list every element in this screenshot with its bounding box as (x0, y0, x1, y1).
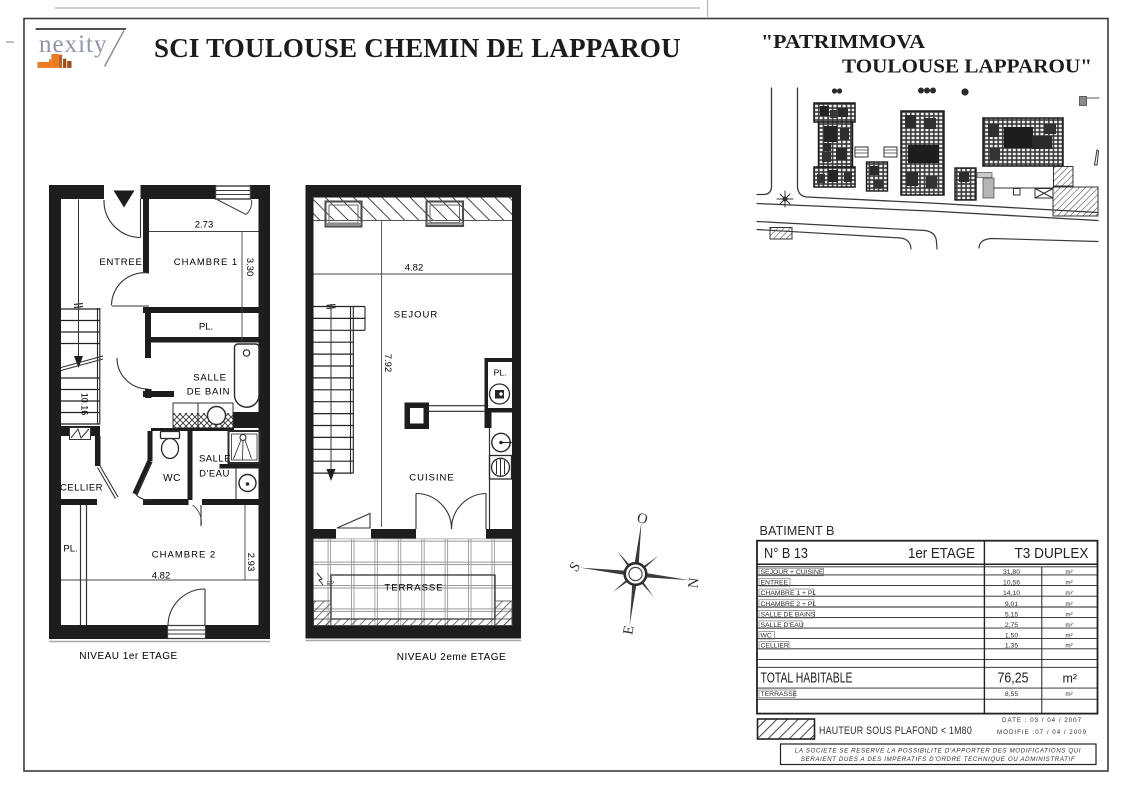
svg-text:HAUTEUR SOUS PLAFOND < 1M80: HAUTEUR SOUS PLAFOND < 1M80 (819, 725, 972, 737)
svg-text:CELLIER: CELLIER (60, 483, 103, 494)
svg-text:m²: m² (1065, 611, 1072, 618)
svg-text:PL.: PL. (63, 544, 77, 555)
svg-text:1,35: 1,35 (1005, 643, 1018, 650)
svg-text:2.93: 2.93 (245, 553, 256, 572)
svg-text:PL.: PL. (199, 322, 213, 333)
svg-text:SALLE: SALLE (193, 373, 227, 384)
svg-text:1,50: 1,50 (1005, 632, 1018, 639)
svg-text:WC: WC (761, 632, 772, 639)
svg-text:nexity: nexity (39, 31, 108, 58)
svg-text:14,10: 14,10 (1003, 590, 1020, 597)
svg-text:MODIFIE :07 / 04 / 2009: MODIFIE :07 / 04 / 2009 (997, 729, 1087, 736)
svg-text:m²: m² (1065, 691, 1072, 698)
svg-text:SALLE D'EAU: SALLE D'EAU (761, 622, 804, 629)
svg-text:SALLE DE BAINS: SALLE DE BAINS (761, 611, 816, 618)
svg-text:D'EAU: D'EAU (199, 469, 230, 480)
svg-text:SEJOUR + CUISINE: SEJOUR + CUISINE (761, 569, 824, 576)
svg-text:N° B 13: N° B 13 (764, 546, 808, 562)
svg-text:m²: m² (1065, 580, 1072, 587)
svg-text:m²: m² (1065, 590, 1072, 597)
svg-text:m²: m² (1065, 643, 1072, 650)
svg-text:SCI TOULOUSE CHEMIN DE LAPPARO: SCI TOULOUSE CHEMIN DE LAPPAROU (154, 33, 681, 63)
svg-text:CHAMBRE 1: CHAMBRE 1 (174, 257, 238, 268)
svg-text:CHAMBRE 1 + PL: CHAMBRE 1 + PL (761, 590, 817, 597)
svg-text:SALLE: SALLE (199, 454, 231, 465)
svg-text:10.16: 10.16 (79, 393, 89, 416)
svg-text:m²: m² (1065, 622, 1072, 629)
svg-text:ENTREE: ENTREE (761, 580, 789, 587)
svg-text:m²: m² (1065, 601, 1072, 608)
svg-text:TOTAL HABITABLE: TOTAL HABITABLE (761, 671, 853, 687)
svg-text:DATE : 03 / 04 / 2007: DATE : 03 / 04 / 2007 (1002, 717, 1082, 724)
svg-text:2,75: 2,75 (1005, 622, 1018, 629)
svg-text:CELLIER: CELLIER (761, 643, 789, 650)
svg-text:9,01: 9,01 (1005, 601, 1018, 608)
svg-text:CUISINE: CUISINE (409, 473, 455, 484)
svg-text:1er ETAGE: 1er ETAGE (908, 546, 975, 562)
svg-text:TERRASSE: TERRASSE (761, 691, 798, 698)
svg-text:"PATRIMMOVA: "PATRIMMOVA (761, 32, 925, 53)
svg-text:3.30: 3.30 (244, 258, 255, 277)
svg-text:7.92: 7.92 (382, 354, 393, 373)
svg-text:T3 DUPLEX: T3 DUPLEX (1015, 546, 1089, 562)
svg-text:WC: WC (163, 473, 181, 484)
svg-text:2.73: 2.73 (195, 220, 214, 231)
svg-text:76,25: 76,25 (998, 671, 1029, 687)
svg-text:TOULOUSE LAPPAROU": TOULOUSE LAPPAROU" (842, 57, 1092, 78)
svg-text:LA SOCIETE SE RESERVE LA POSSI: LA SOCIETE SE RESERVE LA POSSIBILITE D'A… (795, 748, 1081, 755)
svg-text:EP: EP (327, 581, 335, 587)
svg-text:10,56: 10,56 (1003, 580, 1020, 587)
svg-text:SERAIENT DUES A DES IMPERATIFS: SERAIENT DUES A DES IMPERATIFS D'ORDRE T… (801, 756, 1076, 763)
svg-text:31,80: 31,80 (1003, 569, 1020, 576)
svg-text:DE BAIN: DE BAIN (187, 387, 231, 398)
svg-text:BATIMENT B: BATIMENT B (760, 523, 835, 538)
svg-text:NIVEAU 1er ETAGE: NIVEAU 1er ETAGE (79, 651, 177, 662)
svg-text:TERRASSE: TERRASSE (384, 583, 443, 594)
svg-text:4.82: 4.82 (152, 571, 171, 582)
svg-text:CHAMBRE 2 + PL: CHAMBRE 2 + PL (761, 601, 817, 608)
svg-text:m²: m² (1063, 672, 1078, 686)
svg-text:SEJOUR: SEJOUR (394, 310, 439, 321)
svg-text:CHAMBRE 2: CHAMBRE 2 (152, 550, 216, 561)
svg-text:8,55: 8,55 (1005, 691, 1018, 698)
svg-text:NIVEAU 2eme ETAGE: NIVEAU 2eme ETAGE (397, 652, 506, 663)
svg-text:m²: m² (1065, 569, 1072, 576)
svg-text:ENTREE: ENTREE (99, 257, 142, 268)
svg-text:m²: m² (1065, 632, 1072, 639)
svg-text:4.82: 4.82 (405, 263, 424, 274)
svg-text:PL.: PL. (494, 368, 507, 378)
svg-text:5,15: 5,15 (1005, 611, 1018, 618)
